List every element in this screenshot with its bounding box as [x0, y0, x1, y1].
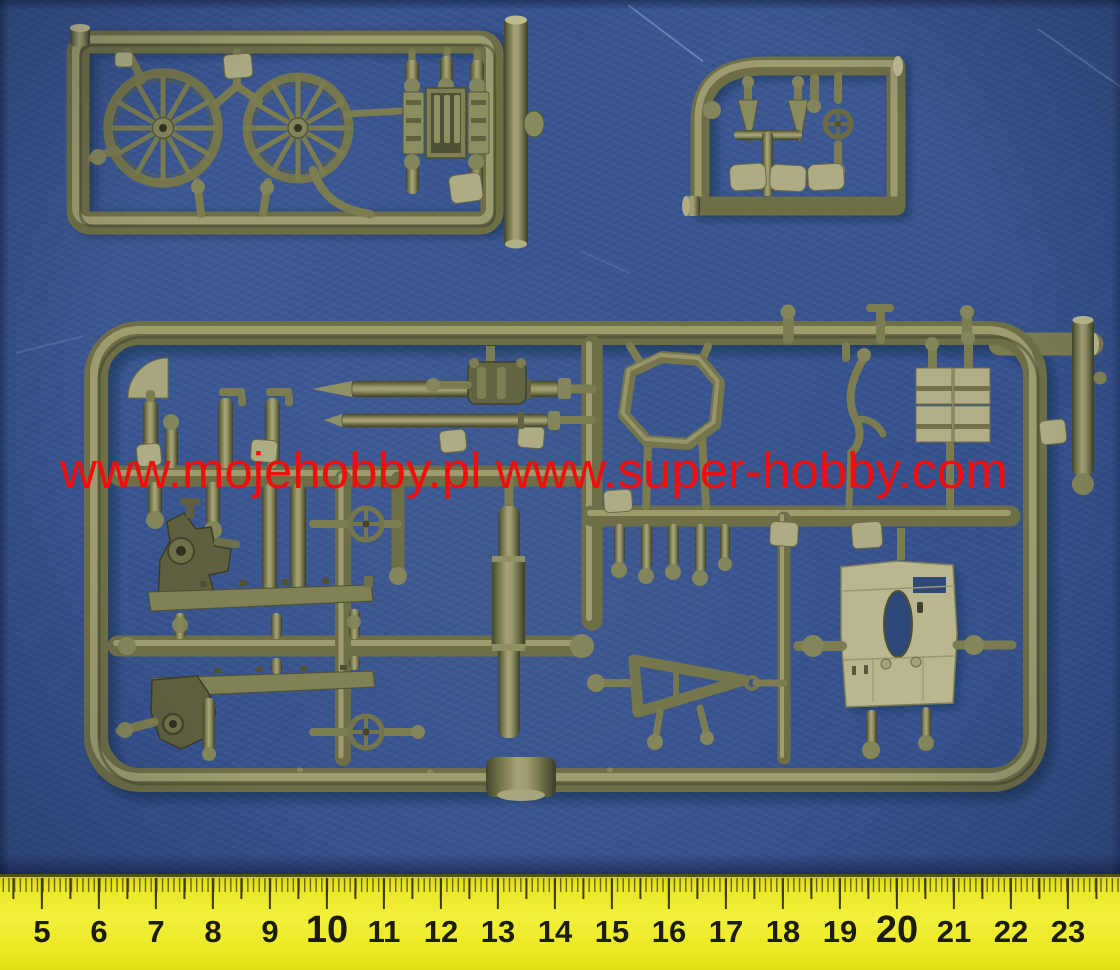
- centimeter-ticks: [0, 878, 1120, 909]
- small-handwheel-part: [825, 72, 851, 177]
- seat-parts: [729, 163, 845, 192]
- ruler-number: 12: [424, 914, 458, 950]
- main-sprue: [94, 304, 1107, 801]
- ruler-number: 7: [147, 914, 164, 950]
- handwheel-lower: [313, 716, 425, 748]
- ruler-number: 20: [876, 909, 918, 952]
- photo-of-model-kit-sprues: www.mojehobby.pl www.super-hobby.com 5 6…: [0, 0, 1120, 970]
- ruler-number: 14: [538, 914, 572, 950]
- watermark-text: www.mojehobby.pl www.super-hobby.com: [60, 441, 1008, 500]
- knob-part: [703, 101, 721, 119]
- ruler-number: 10: [306, 909, 348, 952]
- a-frame-trail-part: [587, 660, 784, 750]
- ruler-number: 18: [766, 914, 800, 950]
- ruler-number: 21: [937, 914, 971, 950]
- wagon-wheel-right: [247, 77, 349, 179]
- ruler-number: 22: [994, 914, 1028, 950]
- ruler-number: 13: [481, 914, 515, 950]
- ruler-number: 5: [33, 914, 50, 950]
- octagonal-frame-part: [623, 355, 720, 444]
- small-parts-sprue: [682, 56, 903, 216]
- ruler-number: 16: [652, 914, 686, 950]
- handwheel-upper: [313, 508, 398, 540]
- ruler-number: 19: [823, 914, 857, 950]
- ammo-crate-part: [403, 50, 489, 204]
- gun-barrel-part: [492, 478, 525, 738]
- centimeter-ruler: 5 6 7 8 9 10 11 12 13 14 15 16 17 18 19 …: [0, 874, 1120, 970]
- shield-notch-cutout: [913, 577, 946, 593]
- ruler-number: 6: [90, 914, 107, 950]
- ruler-number: 23: [1051, 914, 1085, 950]
- runner-bar: [504, 18, 528, 246]
- wheel-sprue: [70, 16, 544, 249]
- ruler-shadow: [0, 854, 1120, 874]
- ruler-number: 9: [261, 914, 278, 950]
- ruler-number: 11: [368, 914, 401, 950]
- wagon-wheel-left: [108, 73, 218, 183]
- breech-bracket-part: [158, 498, 240, 602]
- gun-shield-part: [798, 561, 1012, 759]
- ruler-number: 15: [595, 914, 629, 950]
- shield-oval-cutout: [884, 591, 912, 657]
- ruler-number: 17: [709, 914, 743, 950]
- ruler-number: 8: [204, 914, 221, 950]
